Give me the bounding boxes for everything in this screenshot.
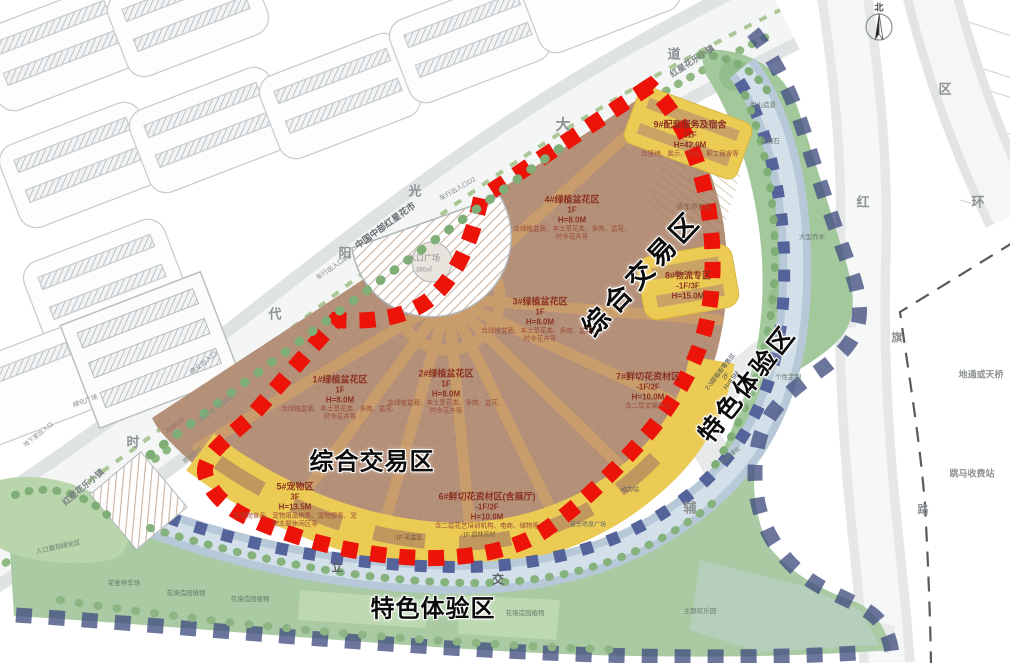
road-char-da: 大 [555,114,570,135]
road-char-yang: 阳 [338,243,351,262]
road-char-huan: 环 [971,192,984,211]
block-label-9: 9#配套服务及宿舍11F H=42.0M含接待、展示、办公、职工宿舍等 [625,119,755,158]
road-char-hong: 红 [856,192,869,211]
block-label-8: 8#物流专区-1F/3F H=15.0M [643,270,733,301]
block-label-6: 6#鲜切花资材区(含展厅)-1F/2F H=10.0M含二层花艺培训机构、电商、… [421,491,553,530]
block-label-1: 1#绿植盆花区1F H=8.0M含绿植盆栽、本土草花类、多肉、盆花、时令花卉等 [281,374,399,422]
block-label-2: 2#绿植盆花区1F H=8.0M含绿植盆栽、本土草花类、多肉、盆花、时令花卉等 [387,368,505,416]
block-label-5: 5#宠物区3F H=13.5M含宠物食品、宠物用品销售、宠物服务、宠物主题休闲区… [231,481,359,529]
road-char-dai: 代 [268,304,281,323]
block-label-4: 4#绿植盆花区1F H=8.0M含绿植盆栽、本土草花类、多肉、盆花、时令花卉等 [513,194,631,242]
road-char-dao: 道 [667,44,680,63]
block-label-7: 7#鲜切花资材区-1F/2F H=10.0M含二层文娱中心 [598,371,698,410]
road-char-jiao: 交 [492,571,504,588]
road-char-qi: 旗 [892,329,903,345]
block-label-3: 3#绿植盆花区1F H=8.0M含绿植盆栽、本土草花类、多肉、盆花、时令花卉等 [481,296,599,344]
site-plan-map: 综合交易区 综合交易区 特色体验区 特色体验区 1#绿植盆花区1F H=8.0M… [0,0,1010,663]
zone-label-trade-horizontal: 综合交易区 [310,442,435,477]
zone-label-experience-horizontal: 特色体验区 [371,589,496,624]
road-char-guang: 光 [408,181,421,200]
expressway-centerline [900,242,1010,663]
road-char-fu: 辅 [683,498,696,517]
road-char-lu: 路 [918,501,929,517]
road-char-shi: 时 [126,432,139,451]
road-char-li: 立 [332,559,343,575]
road-char-qu: 区 [938,79,951,98]
